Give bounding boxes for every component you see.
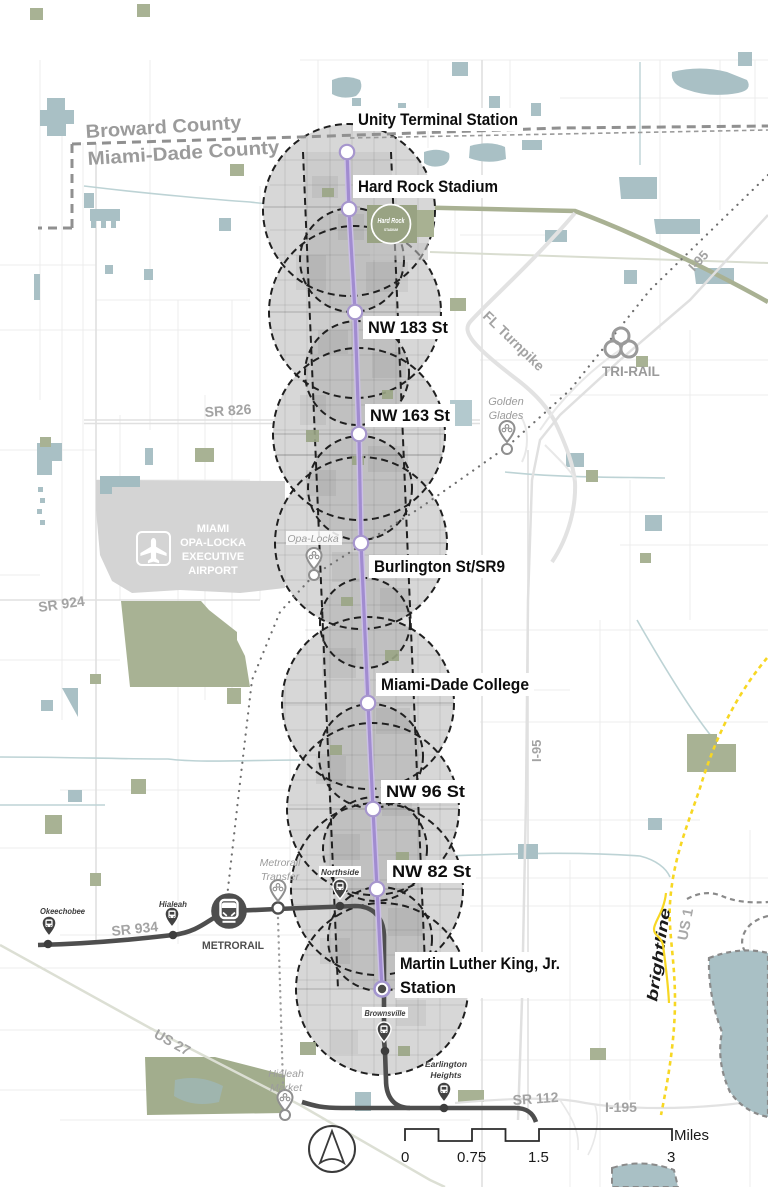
svg-text:NW 163 St: NW 163 St — [370, 406, 450, 425]
svg-text:Burlington St/SR9: Burlington St/SR9 — [374, 557, 505, 576]
svg-text:METRORAIL: METRORAIL — [202, 940, 264, 952]
svg-text:OPA-LOCKA: OPA-LOCKA — [180, 537, 246, 549]
svg-text:Market: Market — [270, 1082, 303, 1094]
svg-text:Unity Terminal Station: Unity Terminal Station — [358, 110, 518, 129]
svg-text:Northside: Northside — [321, 867, 359, 877]
svg-text:MIAMI: MIAMI — [197, 523, 229, 535]
svg-text:Heights: Heights — [430, 1070, 461, 1080]
svg-text:SR 112: SR 112 — [512, 1089, 559, 1108]
svg-text:Miami-Dade College: Miami-Dade College — [381, 675, 529, 694]
svg-text:NW 96 St: NW 96 St — [386, 782, 465, 801]
svg-text:Hialeah: Hialeah — [159, 899, 187, 909]
svg-text:I-95: I-95 — [529, 740, 544, 762]
svg-text:NW 82 St: NW 82 St — [392, 862, 471, 881]
svg-text:NW 183 St: NW 183 St — [368, 318, 448, 337]
svg-text:AIRPORT: AIRPORT — [188, 565, 238, 577]
svg-text:Brownsville: Brownsville — [365, 1008, 406, 1018]
svg-text:STADIUM: STADIUM — [384, 227, 399, 232]
svg-text:Opa-Locka: Opa-Locka — [287, 533, 339, 545]
svg-text:Miles: Miles — [674, 1127, 709, 1144]
svg-text:Hard Rock Stadium: Hard Rock Stadium — [358, 177, 498, 196]
svg-text:Glades: Glades — [489, 410, 524, 422]
svg-text:Transfer: Transfer — [261, 871, 300, 883]
svg-text:Hard Rock: Hard Rock — [378, 216, 406, 225]
svg-text:1.5: 1.5 — [528, 1149, 549, 1166]
svg-text:Hialeah: Hialeah — [268, 1068, 304, 1080]
svg-text:0.75: 0.75 — [457, 1149, 486, 1166]
svg-text:3: 3 — [667, 1149, 675, 1166]
svg-text:Metrorail: Metrorail — [260, 857, 302, 869]
svg-text:Golden: Golden — [488, 396, 523, 408]
svg-text:Martin Luther King, Jr.: Martin Luther King, Jr. — [400, 954, 560, 973]
svg-text:Okeechobee: Okeechobee — [40, 906, 85, 916]
svg-text:0: 0 — [401, 1149, 409, 1166]
svg-text:EXECUTIVE: EXECUTIVE — [182, 551, 244, 563]
svg-text:I-195: I-195 — [605, 1099, 637, 1115]
svg-text:Earlington: Earlington — [425, 1059, 467, 1069]
svg-text:SR 826: SR 826 — [204, 401, 252, 420]
svg-text:TRI-RAIL: TRI-RAIL — [602, 364, 660, 379]
svg-text:Station: Station — [400, 978, 456, 997]
